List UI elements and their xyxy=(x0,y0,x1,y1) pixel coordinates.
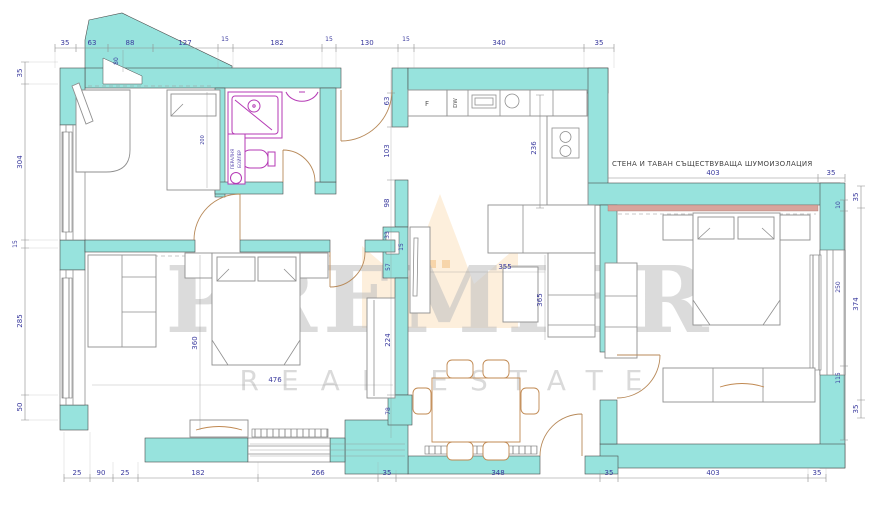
dim-label: 200 xyxy=(200,135,206,145)
dim-label: 63 xyxy=(88,39,97,47)
dim-label: 355 xyxy=(498,263,511,271)
kitchen-counter-right xyxy=(547,116,588,205)
dim-label: 25 xyxy=(73,469,82,477)
wall-kitchen-top xyxy=(408,68,608,93)
nightstand xyxy=(780,215,810,240)
dim-label: 340 xyxy=(492,39,505,47)
wall-hall-top xyxy=(392,68,408,127)
dim-label: 403 xyxy=(706,469,719,477)
floorplan-page: PREMIER REAL ESTATE xyxy=(0,0,885,528)
wall-bath-bottom-b xyxy=(315,182,336,194)
fridge-label: F xyxy=(425,100,429,108)
bathroom: ПЕРАЛНЯ БОЙЛЕР xyxy=(228,92,318,184)
window-bed2 xyxy=(820,250,845,375)
dim-label: 80 xyxy=(113,57,120,65)
dim-label: 224 xyxy=(384,333,392,347)
dim-label: 15 xyxy=(402,36,410,43)
dresser-bed2 xyxy=(663,368,815,402)
boiler-label: БОЙЛЕР xyxy=(237,150,242,168)
dim-label: 35 xyxy=(605,469,614,477)
chair xyxy=(483,442,509,460)
door-bathroom xyxy=(283,150,315,182)
dishwasher-label: DW xyxy=(453,98,459,108)
wall-bath-right xyxy=(320,88,336,182)
dim-label: 57 xyxy=(385,263,392,271)
dim-label: 15 xyxy=(398,243,405,251)
nightstand xyxy=(300,253,328,278)
dim-label: 33 xyxy=(384,231,391,239)
wall-hall-seg2 xyxy=(395,180,408,227)
dim-label: 98 xyxy=(383,199,391,208)
dim-label: 63 xyxy=(383,97,391,106)
dim-label: 50 xyxy=(16,403,24,412)
dim-label: 127 xyxy=(178,39,191,47)
radiator xyxy=(810,255,821,370)
dim-label: 103 xyxy=(383,144,391,157)
dim-label: 35 xyxy=(595,39,604,47)
wall-room1-bottom-a xyxy=(85,240,195,252)
dim-label: 115 xyxy=(835,372,842,384)
pillow xyxy=(171,94,216,116)
dim-label: 250 xyxy=(835,281,842,293)
dim-label: 25 xyxy=(121,469,130,477)
pillow xyxy=(738,217,774,239)
dim-label: 403 xyxy=(706,169,719,177)
furniture-room1 xyxy=(72,83,220,190)
wall-living-bottom-a xyxy=(408,456,540,474)
dim-label: 304 xyxy=(16,155,24,169)
wall-room1-bottom-c xyxy=(365,240,395,252)
radiator xyxy=(62,278,72,398)
sink xyxy=(286,92,318,101)
chair xyxy=(483,360,509,378)
wall-room1-bottom-b xyxy=(240,240,330,252)
dim-label: 35 xyxy=(852,193,860,202)
dim-label: 476 xyxy=(268,376,282,384)
wall-step-block xyxy=(345,420,408,474)
dim-label: 182 xyxy=(270,39,283,47)
toilet-tank xyxy=(268,152,275,166)
dim-label: 130 xyxy=(360,39,373,47)
chair xyxy=(447,442,473,460)
wall-master-bottom-a xyxy=(145,438,248,462)
dim-label: 88 xyxy=(126,39,135,47)
dim-label: 35 xyxy=(61,39,70,47)
dim-label: 35 xyxy=(852,405,860,414)
kitchen: F DW xyxy=(408,90,588,205)
dim-label: 266 xyxy=(311,469,325,477)
dim-label: 90 xyxy=(97,469,106,477)
dim-label: 35 xyxy=(827,169,836,177)
wall-bed2-top xyxy=(588,183,840,205)
wall-bed2-bottom xyxy=(600,444,845,468)
door-room1 xyxy=(194,194,240,240)
chair xyxy=(447,360,473,378)
wall-bed2-left-lower xyxy=(600,400,617,444)
coffee-table xyxy=(503,267,538,322)
shower xyxy=(228,92,282,138)
wall-hall-seg3 xyxy=(395,278,408,395)
dim-label: 15 xyxy=(325,36,333,43)
dim-label: 35 xyxy=(16,69,24,78)
chair xyxy=(413,388,431,414)
tv-unit xyxy=(410,227,430,313)
wall-bath-bottom-a xyxy=(215,182,283,194)
dresser-master xyxy=(190,420,248,437)
nightstand xyxy=(185,253,212,278)
dim-label: 15 xyxy=(221,36,229,43)
chair xyxy=(521,388,539,414)
dim-label: 285 xyxy=(16,314,24,327)
dim-label: 236 xyxy=(530,141,538,155)
door-balcony xyxy=(540,414,582,456)
nightstand xyxy=(663,215,693,240)
pillow xyxy=(217,257,255,281)
dim-label: 374 xyxy=(852,297,860,311)
dim-label: 10 xyxy=(835,201,842,209)
dim-label: 35 xyxy=(383,469,392,477)
wall-left-3 xyxy=(60,405,88,430)
toilet xyxy=(242,150,268,168)
dim-label: 78 xyxy=(385,407,392,415)
sofa-top xyxy=(488,205,595,253)
radiator xyxy=(252,429,328,437)
pillow xyxy=(698,217,734,239)
dim-label: 35 xyxy=(813,469,822,477)
insulation-note: СТЕНА И ТАВАН СЪЩЕСТВУВАЩА ШУМОИЗОЛАЦИЯ xyxy=(612,160,813,168)
dim-label: 182 xyxy=(191,469,204,477)
dim-label: 15 xyxy=(12,240,19,248)
dim-label: 360 xyxy=(191,336,199,349)
insulation-strip xyxy=(608,205,818,211)
floorplan-canvas: PREMIER REAL ESTATE xyxy=(0,0,885,528)
dim-label: 365 xyxy=(536,293,544,306)
wall-left-2 xyxy=(60,240,85,270)
dim-label: 348 xyxy=(491,469,504,477)
wardrobe-bed2 xyxy=(605,263,637,358)
pillow xyxy=(258,257,296,281)
washer-label: ПЕРАЛНЯ xyxy=(230,149,235,169)
radiator xyxy=(425,446,537,454)
radiator xyxy=(62,132,72,232)
